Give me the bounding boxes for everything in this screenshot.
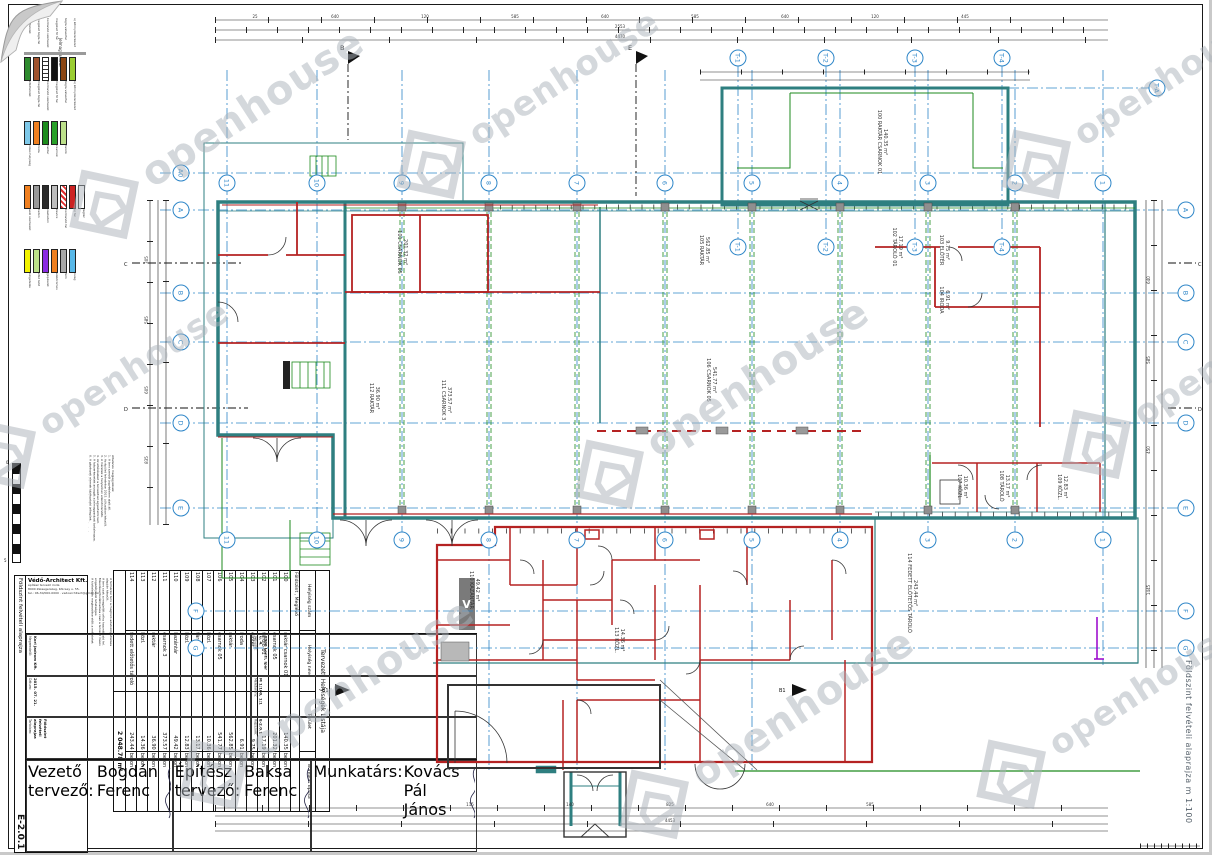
grid-bubble-label: 1 xyxy=(1099,538,1107,542)
page-curl-icon xyxy=(0,0,64,64)
grid-bubble-label: 8 xyxy=(485,181,493,185)
dim-value: 835 xyxy=(144,456,149,464)
room-area-label: 10.36 m² xyxy=(962,476,968,499)
grid-bubble-label: T-1 xyxy=(734,52,742,63)
grid-bubble-label: D xyxy=(177,420,185,425)
dim-value: 305 xyxy=(144,256,149,264)
dim-value: 605 xyxy=(144,386,149,394)
room-area-label: 9.75 m² xyxy=(944,240,950,260)
grid-bubble-label: 7 xyxy=(573,181,581,185)
room-label: 101 CSARNOK 05 xyxy=(396,230,402,274)
svg-text:B: B xyxy=(340,44,344,52)
room-label: 109 KÖZL. xyxy=(1056,474,1063,500)
svg-text:D: D xyxy=(124,407,128,413)
room-label: 113 KÖZL. xyxy=(613,627,620,653)
grid-bubble-label: 3 xyxy=(924,538,932,542)
grid-bubble-label: T-3 xyxy=(911,52,919,63)
grid-bubble-label: B xyxy=(1182,291,1190,295)
grid-bubble-label: 11 xyxy=(223,179,231,187)
room-area-label: 140.35 m² xyxy=(882,129,888,155)
dim-value: 640 xyxy=(331,14,339,19)
dim-value: 2553 xyxy=(615,24,626,29)
svg-text:C: C xyxy=(1198,262,1202,268)
dim-value: 585 xyxy=(691,14,699,19)
room-label: 107 KÖZL. xyxy=(956,474,963,500)
grid-bubble-label: D xyxy=(1182,420,1190,425)
dim-value: 115 xyxy=(466,802,474,807)
room-label: 106 CSARNOK 05 xyxy=(705,358,711,402)
room-area-label: 13.17 m² xyxy=(1004,475,1010,498)
dim-value: 585 xyxy=(144,316,149,324)
svg-text:B1: B1 xyxy=(779,688,786,694)
dim-value: 825 xyxy=(666,802,674,807)
room-label: 108 TÁROLÓ xyxy=(998,470,1005,501)
room-area-label: 12.83 m² xyxy=(1062,476,1068,499)
grid-bubble-label: 6 xyxy=(661,538,669,542)
grid-bubble-label: T-3 xyxy=(911,241,919,252)
room-label: 104 IRODA xyxy=(938,286,944,314)
grid-bubble-label: T-A xyxy=(1153,82,1161,94)
dim-value: 585 xyxy=(511,14,519,19)
svg-text:E: E xyxy=(628,44,632,52)
room-area-label: 36.90 m² xyxy=(374,387,380,410)
grid-bubble-label: C xyxy=(177,340,185,345)
dim-value: 640 xyxy=(1146,276,1151,284)
grid-bubble-label: 5 xyxy=(748,181,756,185)
grid-bubble-label: 5 xyxy=(748,538,756,542)
room-area-label: 243.44 m² xyxy=(912,580,918,606)
grid-bubble-label: T-4 xyxy=(998,52,1006,63)
room-area-label: 541.77 m² xyxy=(711,367,717,393)
grid-bubble-label: 11 xyxy=(223,536,231,544)
dim-value: 1445 xyxy=(1146,584,1151,595)
grid-bubble-label: G xyxy=(1182,645,1190,650)
grid-bubble-label: 10 xyxy=(313,179,321,187)
grid-bubble-label: F xyxy=(192,609,200,613)
room-area-label: 14.36 m² xyxy=(619,629,625,652)
grid-bubble-label: 9 xyxy=(398,181,406,185)
svg-text:B1: B1 xyxy=(322,688,329,694)
grid-bubble-label: T-2 xyxy=(822,241,830,252)
grid-bubble-label: E xyxy=(177,506,185,510)
walls-existing xyxy=(204,88,1138,826)
dim-value: 120 xyxy=(871,14,879,19)
room-area-label: 562.85 m² xyxy=(704,237,710,263)
dim-value: 450 xyxy=(1146,446,1151,454)
dim-value: 585 xyxy=(1146,356,1151,364)
grid-bubble-label: E xyxy=(1182,506,1190,510)
dim-value: 4470 xyxy=(615,34,626,39)
grid-bubble-label: 4 xyxy=(836,538,844,542)
room-labels: 100 RAKTÁR CSARNOK 01140.35 m²101 CSARNO… xyxy=(368,110,1068,654)
dim-value: 585 xyxy=(866,802,874,807)
dimension-chains xyxy=(150,20,1200,846)
room-label: 102 TÁROLÓ 01 xyxy=(891,227,898,266)
room-area-label: 6.91 m² xyxy=(944,290,950,310)
grid-bubble-label: 4 xyxy=(836,181,844,185)
grid-bubble-label: 10 xyxy=(313,536,321,544)
dim-value: 445 xyxy=(961,14,969,19)
room-area-label: 201.32 m² xyxy=(402,239,408,265)
dim-value: 4453 xyxy=(665,818,676,823)
dim-value: 120 xyxy=(421,14,429,19)
wall-tick-marks xyxy=(437,207,1133,531)
stair-icon xyxy=(292,362,330,388)
room-area-label: 49.42 m² xyxy=(474,579,480,602)
grid-bubble-label: A xyxy=(1182,208,1190,213)
grid-bubble-label: T-2 xyxy=(822,52,830,63)
room-label: 105 RAKTÁR xyxy=(698,235,705,266)
dim-value: 25 xyxy=(252,14,258,19)
svg-text:D: D xyxy=(1198,407,1202,413)
room-label: 110 KAZÁNTÁR xyxy=(468,571,475,609)
floor-plan: B E B1 B1 C D C D xyxy=(0,0,1212,855)
room-label: 100 RAKTÁR CSARNOK 01 xyxy=(876,110,883,174)
grid-bubble-label: 6 xyxy=(661,181,669,185)
grid-bubble-label: B xyxy=(177,291,185,295)
room-label: 114 FEDETT ELŐTETŐS TÁROLÓ xyxy=(906,553,913,633)
grid-bubble-label: C xyxy=(1182,340,1190,345)
dim-value: 640 xyxy=(781,14,789,19)
grid-bubble-label: 2 xyxy=(1011,181,1019,185)
dim-value: 640 xyxy=(766,802,774,807)
grid-bubble-label: 9 xyxy=(398,538,406,542)
grid-bubble-label: 1 xyxy=(1099,181,1107,185)
dim-value: 640 xyxy=(601,14,609,19)
room-area-label: 373.57 m² xyxy=(446,387,452,413)
section-markers xyxy=(132,64,1196,408)
room-label: 111 CSARNOK 3 xyxy=(440,380,446,421)
room-label: 112 RAKTÁR xyxy=(368,383,375,414)
grid-bubble-label: T-4 xyxy=(998,241,1006,252)
grid-bubble-label: 8 xyxy=(485,538,493,542)
svg-text:C: C xyxy=(124,262,128,268)
room-area-label: 17.19 m² xyxy=(897,236,903,259)
grid-bubble-label: 7 xyxy=(573,538,581,542)
grid-bubble-label: 2 xyxy=(1011,538,1019,542)
grid-bubble-label: A xyxy=(177,208,185,213)
dim-value: 140 xyxy=(566,802,574,807)
grid-bubble-label: G xyxy=(192,645,200,650)
grid-bubble-label: 3 xyxy=(924,181,932,185)
grid-bubble-label: F xyxy=(1182,609,1190,613)
grid-lines xyxy=(160,66,1178,772)
grid-bubble-label: A0 xyxy=(177,169,185,178)
dimension-text: 2564012058564058564012044525534470305585… xyxy=(144,14,1151,823)
grid-bubble-label: T-1 xyxy=(734,241,742,252)
